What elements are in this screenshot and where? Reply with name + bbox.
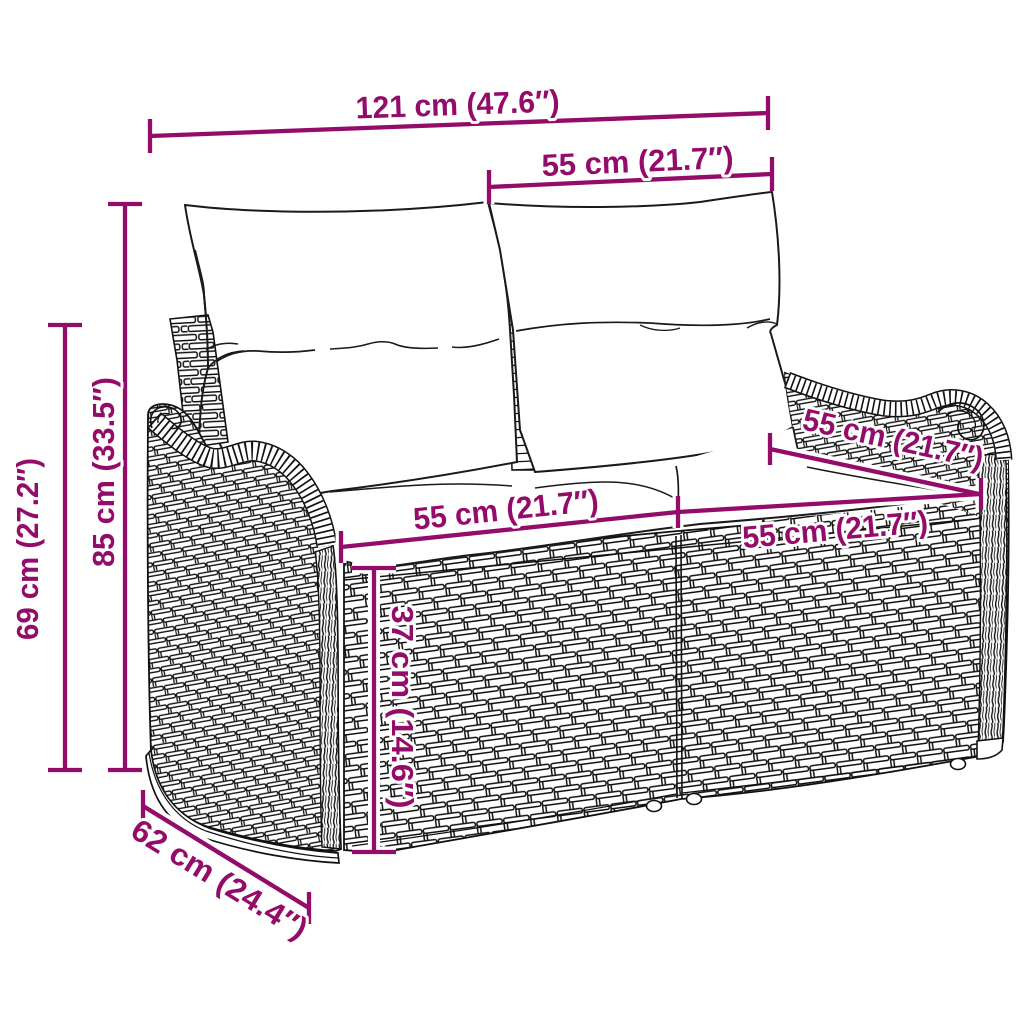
svg-text:85 cm (33.5″): 85 cm (33.5″) <box>86 377 121 567</box>
svg-text:69 cm (27.2″): 69 cm (27.2″) <box>10 458 45 640</box>
svg-text:37 cm (14.6″): 37 cm (14.6″) <box>385 606 420 809</box>
svg-text:121 cm (47.6″): 121 cm (47.6″) <box>355 83 560 125</box>
